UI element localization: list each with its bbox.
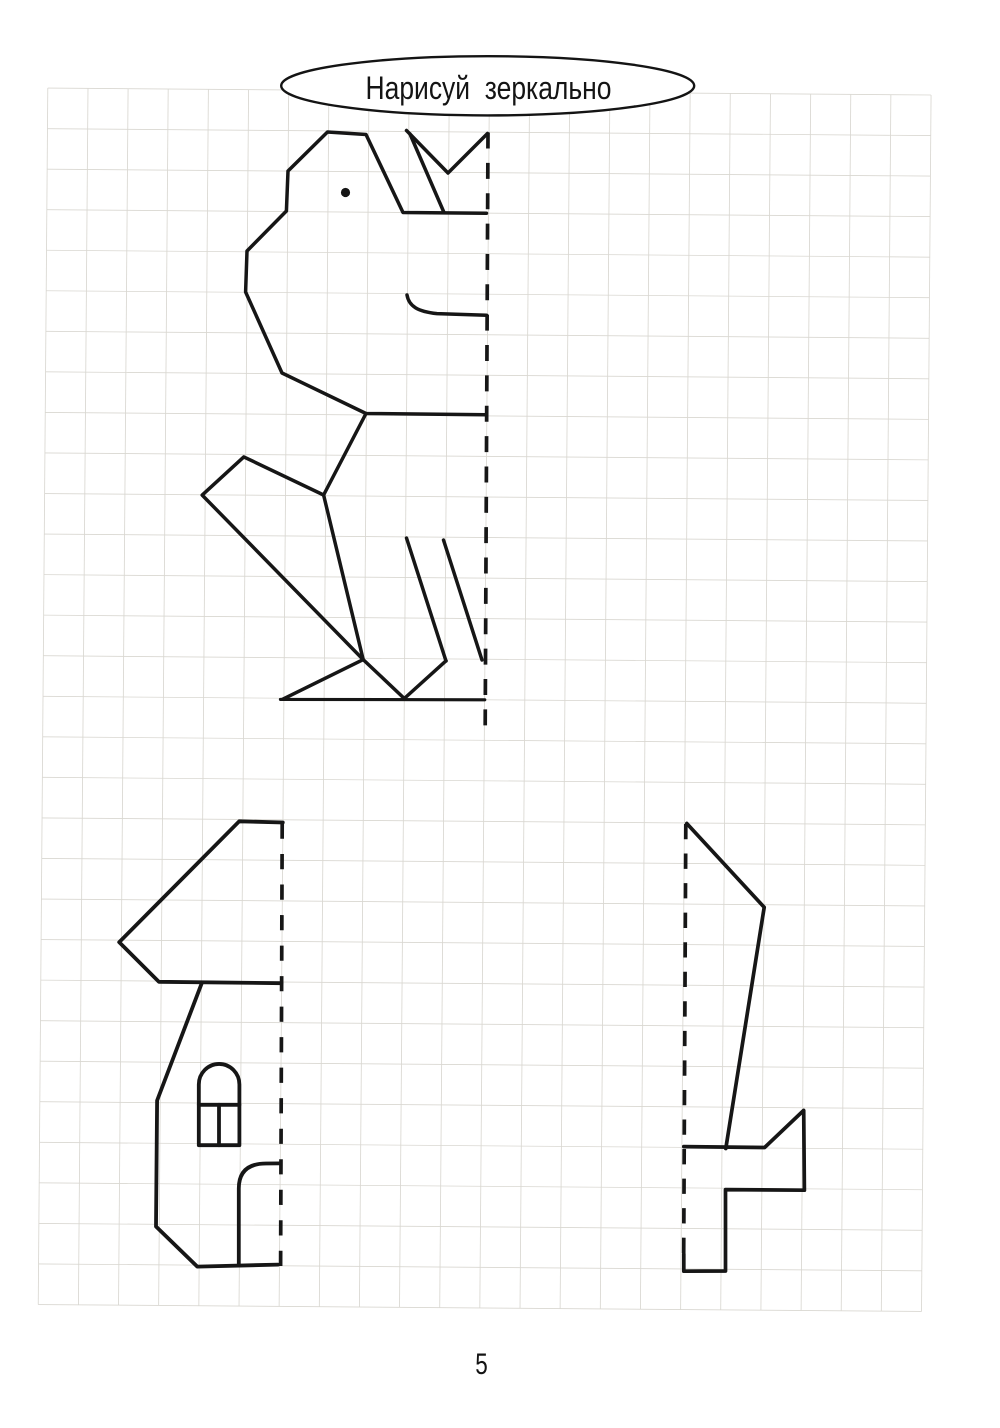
svg-text:5: 5 <box>475 1348 488 1381</box>
svg-text:Нарисуй зеркально: Нарисуй зеркально <box>366 70 612 106</box>
